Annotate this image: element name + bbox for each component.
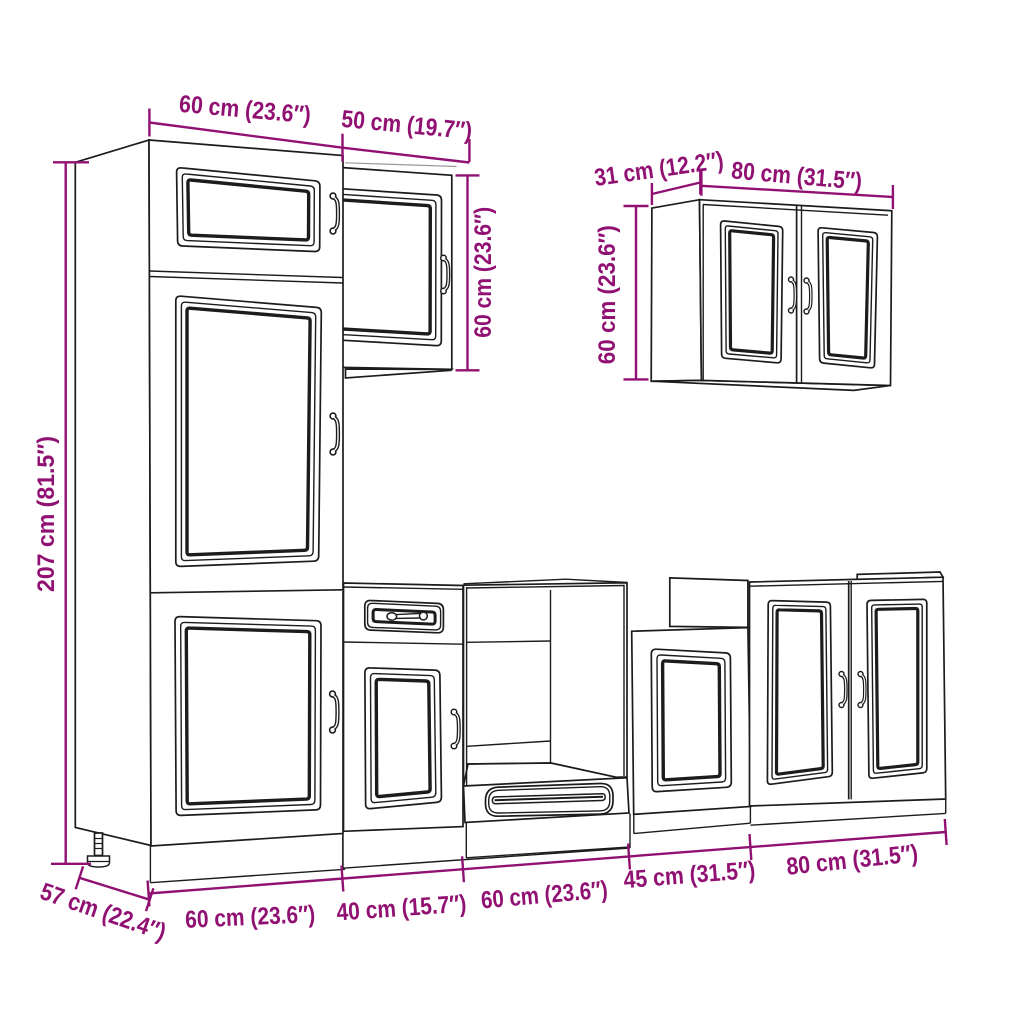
svg-text:207 cm (81.5″): 207 cm (81.5″) xyxy=(33,436,60,592)
svg-text:60 cm (23.6″): 60 cm (23.6″) xyxy=(594,225,621,364)
svg-text:60 cm (23.6″): 60 cm (23.6″) xyxy=(185,901,316,934)
svg-text:60 cm (23.6″): 60 cm (23.6″) xyxy=(470,207,497,338)
